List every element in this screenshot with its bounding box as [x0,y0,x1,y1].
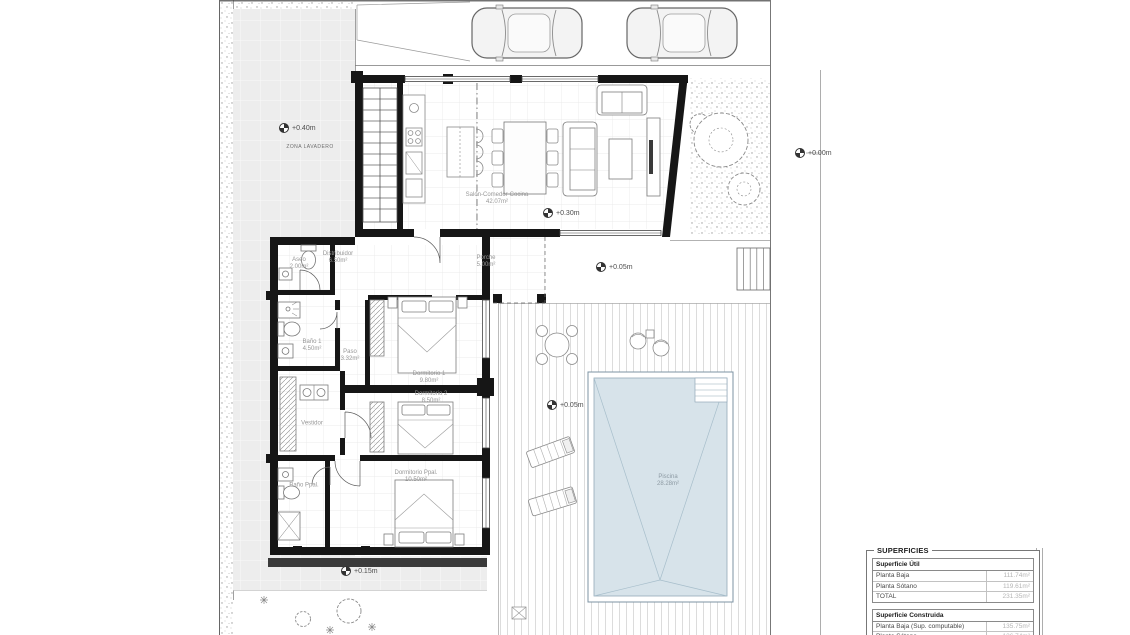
level-point-icon [596,262,606,272]
car-icon [472,5,582,61]
superficies-title: SUPERFICIES [874,546,932,555]
room-label-dormitorio2: Dormitorio 2 8.50m² [415,391,448,405]
master-bedroom-furniture [384,480,464,547]
level-marker: +0.05m [596,262,633,272]
level-marker: +0.30m [543,208,580,218]
kitchen-sink-icon [410,104,419,113]
tv-unit [647,118,660,196]
room-label-vestidor: Vestidor [301,421,323,428]
room-label-paso: Paso 3.32m² [341,349,360,363]
lounge-chair [653,340,669,356]
level-marker: +0.15m [341,566,378,576]
floor-plan-page: Salón-Comedor-Cocina 42.07m² Distribuido… [0,0,1130,635]
superficie-construida-table: Superficie Construida Planta Baja (Sup. … [872,609,1034,635]
toilet-icon [278,322,284,336]
table-header: Superficie Útil [873,559,1033,571]
room-label-bano-ppal: Baño Ppal. [289,483,318,490]
room-label-dormitorio-ppal: Dormitorio Ppal. 10.50m² [394,470,437,484]
level-point-icon [547,400,557,410]
tv-icon [649,140,653,174]
table-row: Planta Baja 111.74m² [873,571,1033,582]
room-label-salon: Salón-Comedor-Cocina 42.07m² [466,192,529,206]
plant-icon [368,623,376,631]
table-row: Planta Sótano 119.61m² [873,582,1033,593]
table-row: TOTAL 231.35m² [873,592,1033,602]
wardrobe [370,402,384,452]
level-marker: +0.05m [547,400,584,410]
car-icon [627,5,737,61]
interior-stairs [363,88,397,222]
wardrobe [370,300,384,356]
level-point-icon [279,123,289,133]
bedroom2-furniture [370,402,453,454]
dining-table [492,122,558,194]
room-label-dormitorio1: Dormitorio 1 9.80m² [413,371,446,385]
driveway [355,2,770,66]
pool-steps [695,378,727,402]
wardrobe [280,377,296,451]
table-row: Planta Baja (Sup. computable) 135.75m² [873,622,1033,633]
room-label-piscina: Piscina 28.28m² [657,474,679,488]
level-point-icon [543,208,553,218]
level-point-icon [341,566,351,576]
superficies-panel: SUPERFICIES Superficie Útil Planta Baja … [866,550,1040,635]
level-marker: +0.40m [279,123,316,133]
plant-icon [326,626,334,634]
plant-icon [260,596,268,604]
level-marker: +0.00m [795,148,832,158]
deck-drain-icon [512,607,526,619]
table-header: Superficie Construida [873,610,1033,622]
side-table [646,330,654,338]
plant-icon [296,612,311,627]
superficie-util-table: Superficie Útil Planta Baja 111.74m² Pla… [872,558,1034,603]
room-label-aseo: Aseo 2.00m² [290,257,309,271]
toilet-icon [301,245,316,251]
coffee-table [609,139,632,179]
kitchen-island [447,127,474,177]
round-table [545,333,569,357]
level-point-icon [795,148,805,158]
laundry-zone-note: ZONA LAVADERO [286,144,333,150]
plant-icon [337,599,361,623]
lounge-chair [630,333,646,349]
room-label-distribuidor: Distribuidor 6.50m² [323,251,353,265]
room-label-porche: Porche 5.00m² [476,255,495,269]
floor-plan-drawing [0,0,1130,635]
exterior-stairs [737,248,770,290]
room-label-bano1: Baño 1 4.50m² [302,339,321,353]
